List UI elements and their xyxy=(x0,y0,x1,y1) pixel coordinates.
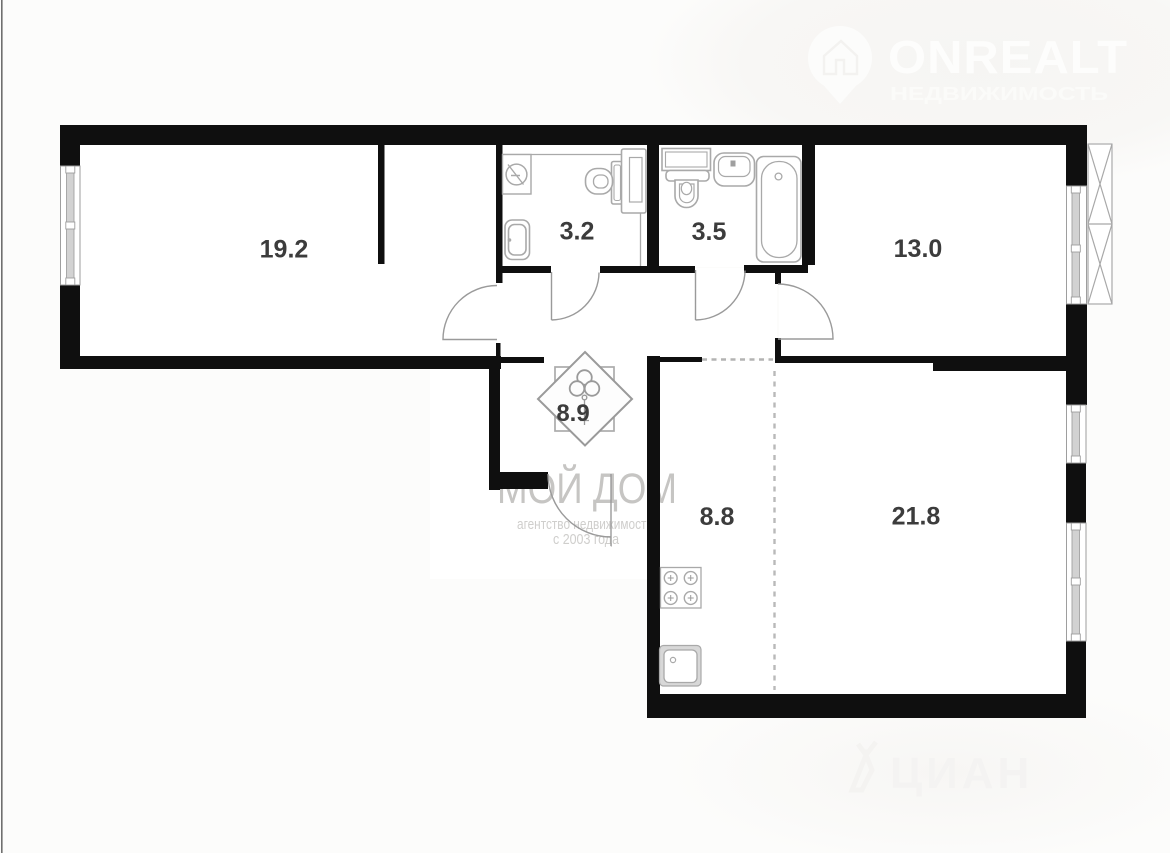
svg-text:ЦИАН: ЦИАН xyxy=(890,749,1033,798)
svg-text:19.2: 19.2 xyxy=(260,236,309,264)
svg-text:НЕДВИЖИМОСТЬ: НЕДВИЖИМОСТЬ xyxy=(890,84,1108,104)
svg-text:8.8: 8.8 xyxy=(700,503,735,531)
svg-text:3.2: 3.2 xyxy=(560,218,595,246)
svg-text:3.5: 3.5 xyxy=(692,218,727,246)
svg-text:21.8: 21.8 xyxy=(892,503,941,531)
svg-text:с 2003 года: с 2003 года xyxy=(553,531,620,548)
svg-text:8.9: 8.9 xyxy=(556,400,589,427)
svg-text:13.0: 13.0 xyxy=(894,235,943,263)
svg-text:ONREALT: ONREALT xyxy=(888,31,1128,83)
